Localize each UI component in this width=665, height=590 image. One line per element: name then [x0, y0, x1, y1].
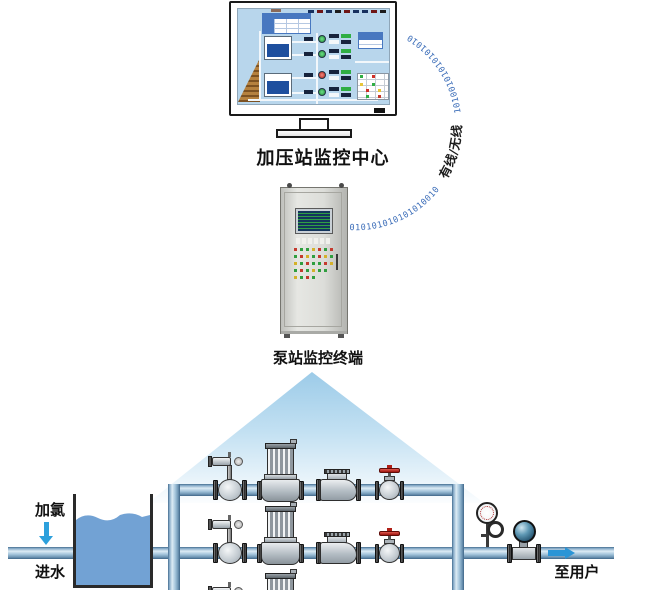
scada-dam-wedge: [238, 58, 260, 102]
chlorine-label: 加氯: [28, 499, 72, 520]
inlet-pipe: [8, 547, 78, 559]
scada-value-chip: [329, 76, 339, 80]
scada-screen: [237, 8, 390, 105]
inlet-valve-stem-tip: [228, 515, 231, 520]
scada-value-chip: [329, 49, 339, 53]
flow-direction-arrow-head-icon: [565, 547, 575, 559]
outlet-valve-body: [379, 480, 400, 500]
left-manifold-pipe: [168, 484, 180, 590]
link-type-label: 有线/无线: [436, 124, 465, 181]
scada-value-chip: [329, 40, 339, 44]
pump-junction-box: [290, 439, 297, 444]
scada-tank-1: [264, 36, 292, 60]
tank-water: [76, 494, 150, 585]
check-valve-body: [320, 542, 357, 564]
monitoring-center-label: 加压站监控中心: [233, 144, 413, 170]
water-tank: [73, 494, 153, 588]
scada-value-chip: [329, 34, 339, 38]
flow-direction-arrow-icon: [548, 550, 565, 556]
flow-meter-sensor-head: [513, 520, 536, 543]
right-manifold-pipe: [452, 484, 464, 590]
pump-station-monitoring-diagram: 加压站监控中心 010101010101010010 有线/无线 1010010…: [0, 0, 665, 590]
scada-value-chip: [329, 55, 339, 59]
scada-value-chip: [341, 40, 351, 44]
inlet-valve-flange: [242, 543, 247, 563]
scada-tank-water: [267, 81, 289, 94]
scada-pipe-line: [292, 77, 316, 79]
scada-pump-icon-running: [318, 88, 326, 96]
cabinet-eyebolt: [339, 183, 344, 188]
monitor-power-button[interactable]: [374, 108, 385, 113]
check-valve-cap: [327, 536, 347, 543]
inlet-valve-actuator-flange: [208, 456, 212, 467]
scada-pipe-line: [355, 61, 389, 63]
scada-data-table: [262, 13, 311, 34]
pump-terminal-label: 泵站监控终端: [243, 347, 393, 368]
scada-right-panel: [358, 32, 383, 49]
check-valve-body: [320, 479, 357, 501]
check-valve-cap: [327, 473, 347, 480]
outlet-valve-flange: [400, 481, 404, 500]
scada-status-dots: [360, 75, 363, 78]
cabinet-eyebolt: [287, 183, 292, 188]
inlet-label: 进水: [28, 561, 72, 582]
scada-value-chip: [341, 55, 351, 59]
scada-status-chip: [341, 49, 351, 53]
chlorine-arrow-head-icon: [39, 536, 53, 545]
cabinet-handle[interactable]: [336, 254, 338, 270]
scada-pipe-line: [292, 41, 316, 43]
inlet-valve-body: [218, 479, 242, 501]
inlet-valve-flange: [242, 480, 247, 500]
pressure-gauge-icon: [476, 502, 498, 524]
scada-value-chip: [329, 87, 339, 91]
check-valve-cover-plate: [324, 532, 350, 537]
pump-junction-box: [290, 569, 297, 574]
scada-tank-2: [264, 73, 292, 97]
scada-value-chip: [304, 90, 313, 94]
link-digits-top: 10100101010101010: [405, 32, 463, 114]
cabinet-foot: [338, 334, 344, 338]
inlet-valve-stem-tip: [228, 452, 231, 457]
inlet-valve-actuator-flange: [208, 586, 212, 590]
inlet-valve-actuator: [212, 457, 231, 466]
inlet-valve-actuator-flange: [208, 519, 212, 530]
scada-value-chip: [329, 70, 339, 74]
scada-value-chip: [304, 52, 313, 56]
scada-status-chip: [341, 87, 351, 91]
inlet-valve-stem: [227, 465, 232, 480]
scada-table-caption: [271, 9, 281, 12]
inlet-valve-handwheel[interactable]: [234, 520, 243, 529]
chlorine-arrow-icon: [44, 522, 49, 536]
pump-motor: [267, 511, 294, 538]
flow-meter-flange: [536, 544, 541, 563]
monitor-stand-base: [276, 129, 352, 138]
pump-motor: [267, 578, 294, 590]
scada-pump-icon-stopped: [318, 71, 326, 79]
link-digits-bottom: 010101010101010010: [349, 185, 442, 234]
flow-meter-spool: [512, 547, 536, 560]
to-users-label: 至用户: [545, 561, 609, 582]
outlet-valve-body: [379, 543, 400, 563]
scada-value-chip: [329, 93, 339, 97]
scada-status-chip: [341, 70, 351, 74]
pump-volute: [261, 479, 300, 502]
cabinet-hmi-screen: [298, 211, 330, 231]
check-valve-cover-plate: [324, 469, 350, 474]
outlet-valve-handle-nub: [387, 528, 392, 531]
scada-status-chip: [341, 34, 351, 38]
pump-motor: [267, 448, 294, 475]
scada-tank-water: [267, 44, 289, 57]
outlet-valve-red-handle[interactable]: [379, 468, 400, 473]
inlet-valve-stem: [227, 528, 232, 543]
scada-value-chip: [341, 93, 351, 97]
inlet-valve-stem-tip: [228, 582, 231, 587]
outlet-valve-flange: [400, 544, 404, 563]
inlet-valve-body: [218, 542, 242, 564]
outlet-valve-red-handle[interactable]: [379, 531, 400, 536]
pump-junction-box: [290, 502, 297, 507]
scada-value-chip: [304, 73, 313, 77]
pump-volute: [261, 542, 300, 565]
outlet-valve-handle-nub: [387, 465, 392, 468]
scada-value-chip: [341, 76, 351, 80]
cabinet-switch-row[interactable]: [296, 238, 300, 244]
scada-pump-icon-running: [318, 35, 326, 43]
cabinet-foot: [284, 334, 290, 338]
cabinet-indicator-leds: [294, 248, 297, 251]
scada-value-chip: [304, 37, 313, 41]
scada-pipe-line: [259, 31, 261, 99]
inlet-valve-handwheel[interactable]: [234, 457, 243, 466]
inlet-valve-actuator: [212, 520, 231, 529]
scada-pump-icon-running: [318, 50, 326, 58]
